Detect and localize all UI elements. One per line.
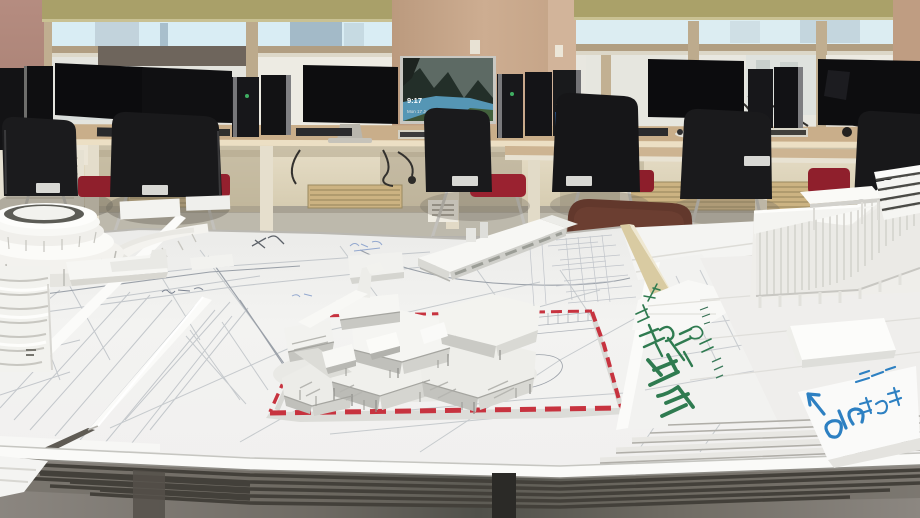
svg-text:9:17: 9:17 bbox=[407, 96, 422, 105]
